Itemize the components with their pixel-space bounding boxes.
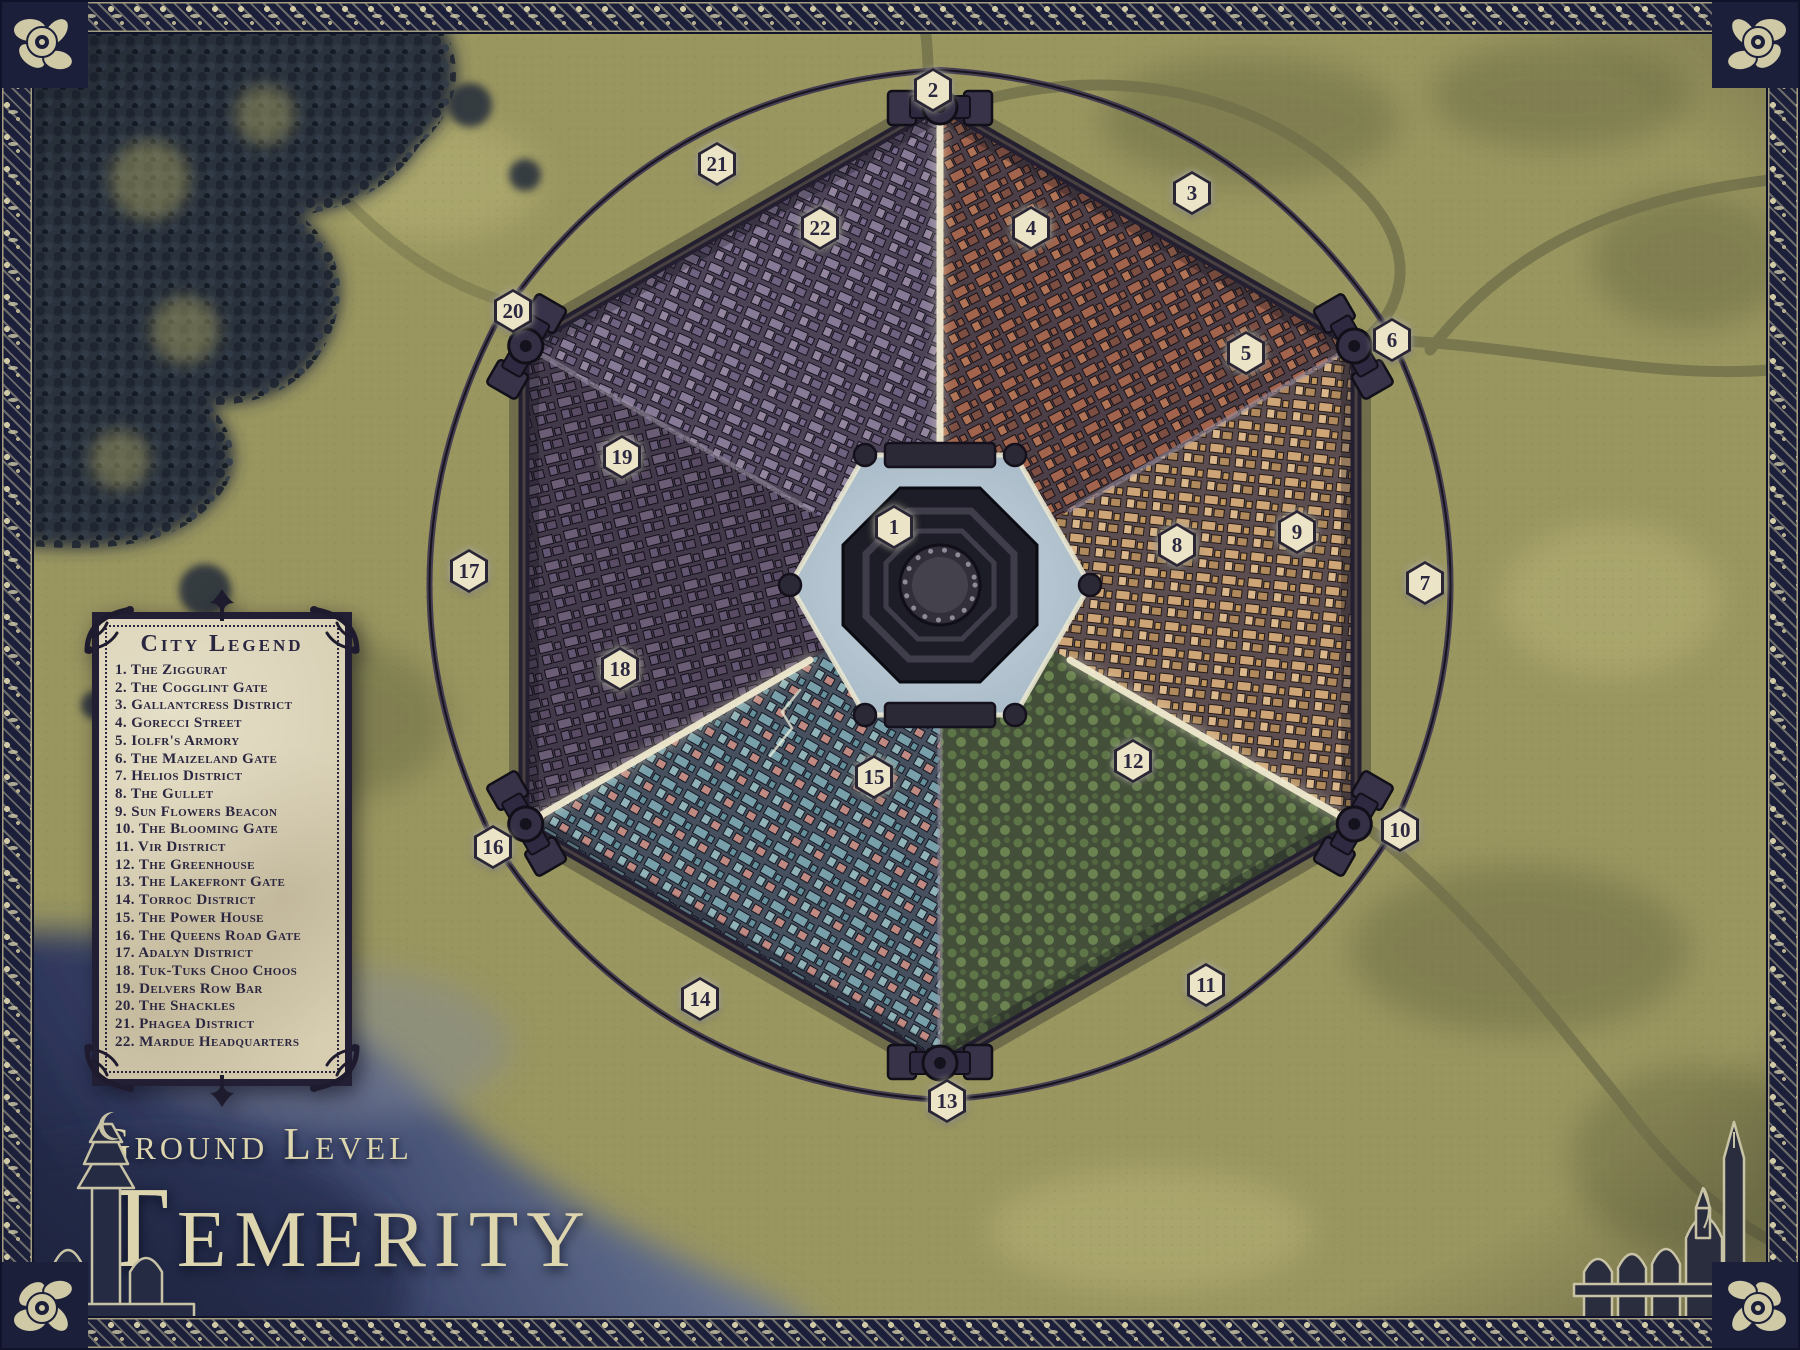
frame-border-top: [0, 0, 1800, 34]
legend-item-19: 19. Delvers Row Bar: [115, 981, 335, 999]
legend-box: City Legend 1. The Ziggurat2. The Coggli…: [92, 612, 352, 1086]
legend-item-5: 5. Iolfr's Armory: [115, 733, 335, 751]
legend-item-8: 8. The Gullet: [115, 786, 335, 804]
legend-item-1: 1. The Ziggurat: [115, 662, 335, 680]
corner-rose-ornament: [1712, 2, 1798, 88]
legend-item-9: 9. Sun Flowers Beacon: [115, 804, 335, 822]
legend-item-14: 14. Torroc District: [115, 892, 335, 910]
legend-item-20: 20. The Shackles: [115, 998, 335, 1016]
legend-finial-top: [204, 587, 240, 621]
legend-item-16: 16. The Queens Road Gate: [115, 928, 335, 946]
frame-border-right: [1766, 0, 1800, 1350]
frame-border-bottom: [0, 1316, 1800, 1350]
legend-item-21: 21. Phagea District: [115, 1016, 335, 1034]
temerity-map-page: 12345678910111213141516171819202122: [0, 0, 1800, 1350]
legend-item-17: 17. Adalyn District: [115, 945, 335, 963]
legend-item-13: 13. The Lakefront Gate: [115, 874, 335, 892]
legend-item-12: 12. The Greenhouse: [115, 857, 335, 875]
corner-rose-ornament: [2, 2, 88, 88]
legend-item-15: 15. The Power House: [115, 910, 335, 928]
corner-rose-ornament: [2, 1262, 88, 1348]
legend-list: 1. The Ziggurat2. The Cogglint Gate3. Ga…: [99, 662, 345, 1051]
legend-item-2: 2. The Cogglint Gate: [115, 680, 335, 698]
corner-rose-ornament: [1712, 1262, 1798, 1348]
legend-item-11: 11. Vir District: [115, 839, 335, 857]
legend-item-7: 7. Helios District: [115, 768, 335, 786]
legend-item-22: 22. Mardue Headquarters: [115, 1034, 335, 1052]
legend-item-3: 3. Gallantcress District: [115, 697, 335, 715]
frame-border-left: [0, 0, 34, 1350]
legend-item-10: 10. The Blooming Gate: [115, 821, 335, 839]
legend-title: City Legend: [99, 631, 345, 658]
legend-item-4: 4. Gorecci Street: [115, 715, 335, 733]
legend-finial-bottom: [204, 1075, 240, 1109]
legend-item-18: 18. Tuk-Tuks Choo Choos: [115, 963, 335, 981]
legend-item-6: 6. The Maizeland Gate: [115, 751, 335, 769]
